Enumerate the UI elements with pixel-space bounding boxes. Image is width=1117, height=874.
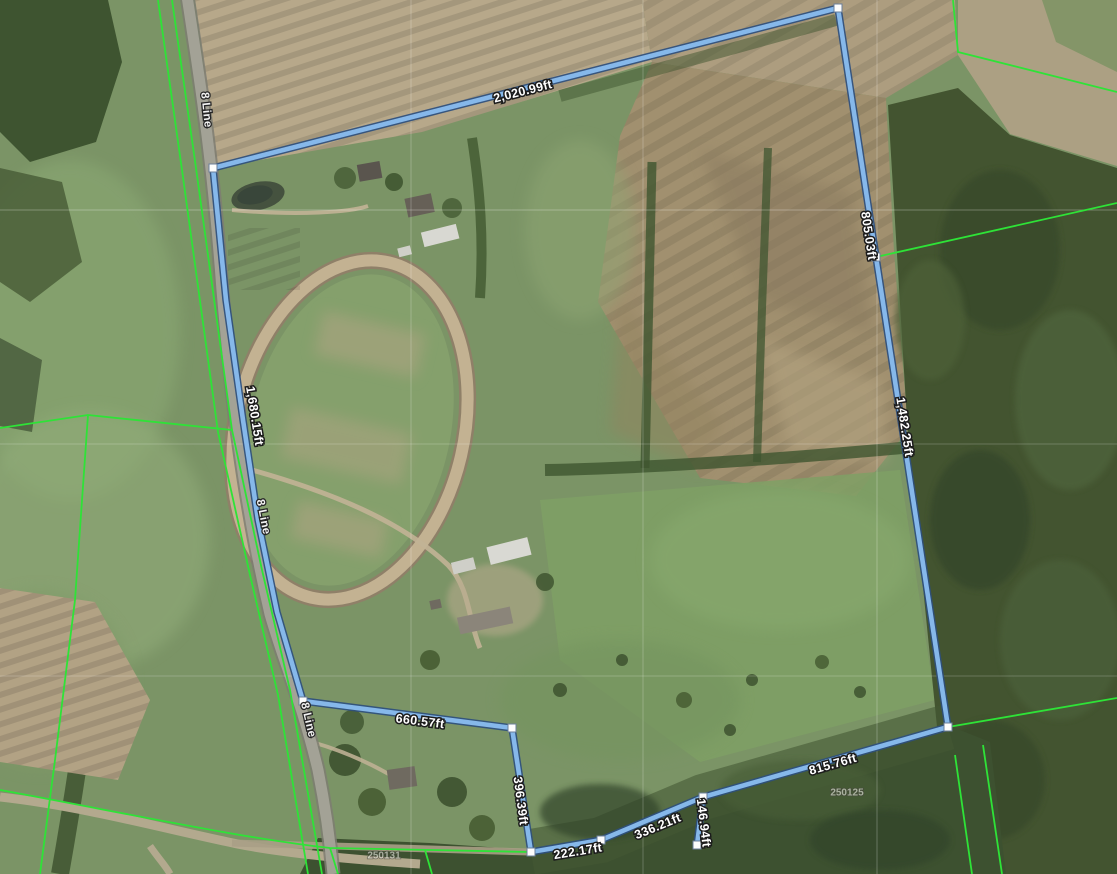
satellite-imagery-layer xyxy=(0,0,1117,874)
boundary-vertex-handle[interactable] xyxy=(944,723,952,731)
parcel-ghost-label: 250131 xyxy=(367,851,401,862)
aerial-map-canvas[interactable]: 2,020.99ft 805.03ft 1,482.25ft 815.76ft … xyxy=(0,0,1117,874)
parcel-ghost-label: 250125 xyxy=(830,788,864,799)
boundary-vertex-handle[interactable] xyxy=(527,848,535,856)
boundary-vertex-handle[interactable] xyxy=(209,164,217,172)
boundary-vertex-handle[interactable] xyxy=(834,4,842,12)
boundary-vertex-handle[interactable] xyxy=(508,724,516,732)
aerial-map-viewport[interactable]: 2,020.99ft 805.03ft 1,482.25ft 815.76ft … xyxy=(0,0,1117,874)
